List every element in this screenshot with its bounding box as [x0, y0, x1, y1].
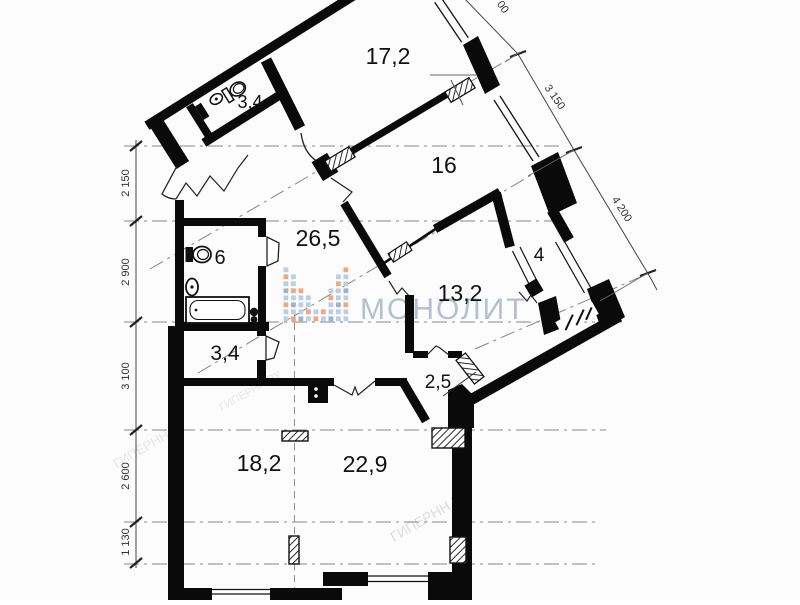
svg-text:2 600: 2 600: [120, 462, 132, 490]
svg-text:2 900: 2 900: [120, 258, 132, 286]
svg-text:17,2: 17,2: [366, 43, 411, 69]
svg-text:2 150: 2 150: [120, 169, 132, 197]
svg-text:3,4: 3,4: [210, 342, 240, 365]
svg-text:6: 6: [214, 247, 225, 269]
svg-text:16: 16: [431, 152, 457, 178]
svg-text:1 130: 1 130: [120, 528, 132, 556]
svg-text:22,9: 22,9: [343, 451, 388, 477]
svg-text:13,2: 13,2: [438, 280, 483, 306]
svg-text:3,4: 3,4: [237, 92, 262, 112]
svg-text:4: 4: [534, 245, 545, 266]
svg-text:18,2: 18,2: [237, 450, 282, 476]
svg-text:2,5: 2,5: [425, 372, 451, 393]
svg-text:3 100: 3 100: [120, 362, 132, 390]
svg-text:26,5: 26,5: [296, 225, 341, 251]
